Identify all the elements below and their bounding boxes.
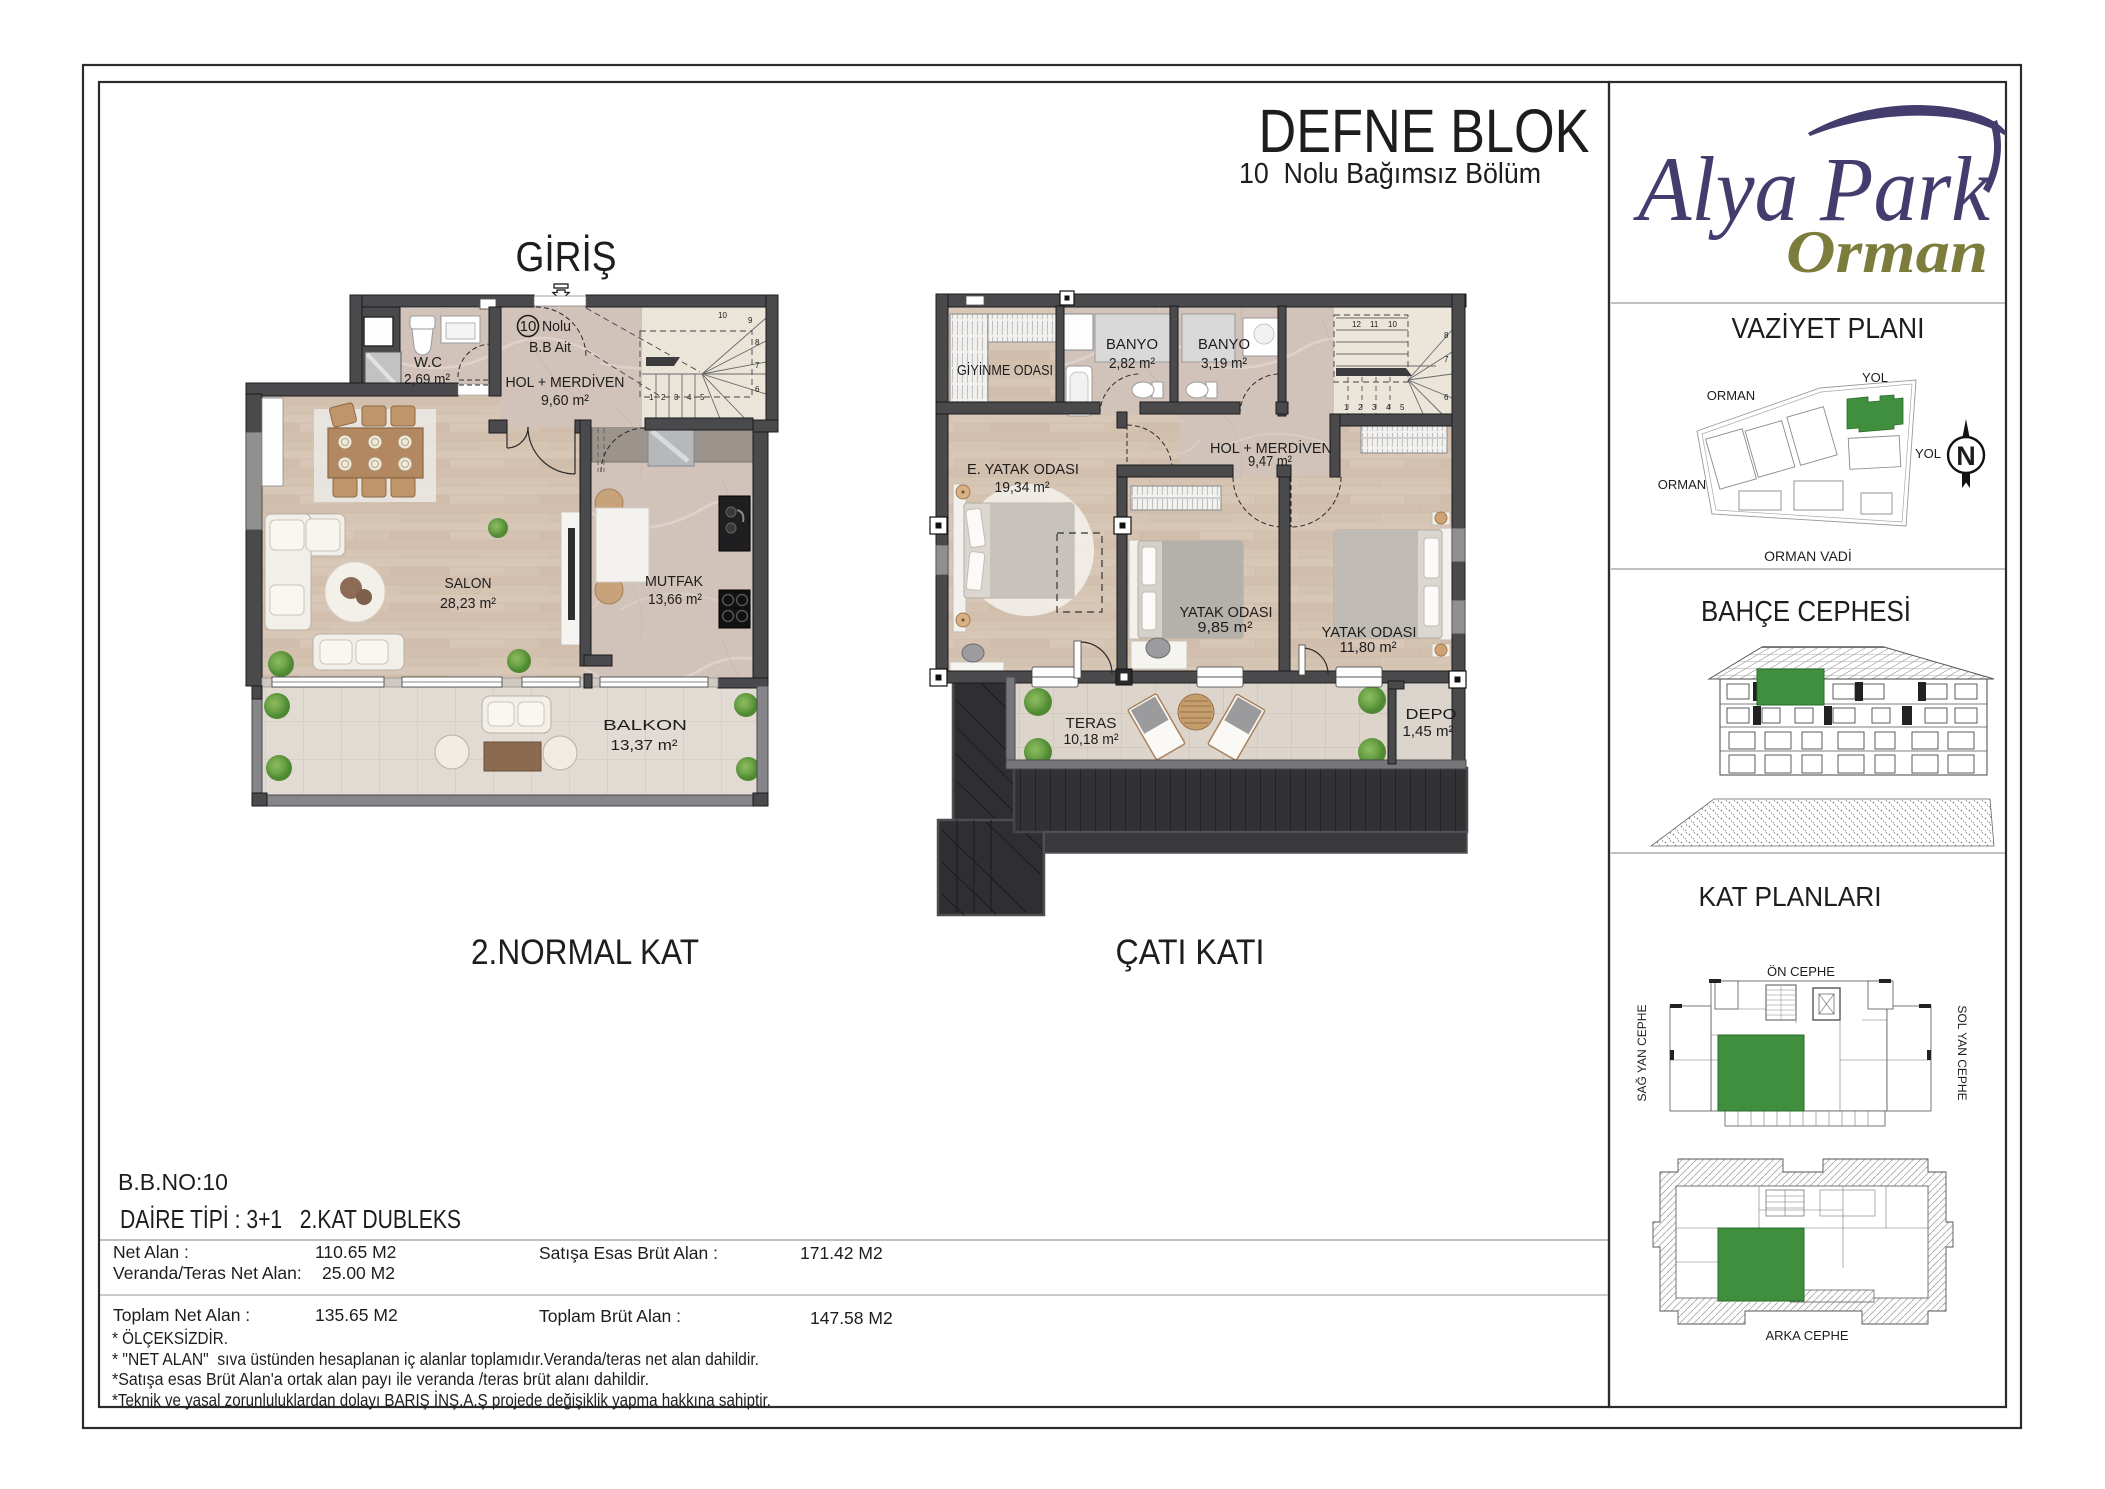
svg-text:11: 11 [1370, 320, 1379, 329]
svg-text:ORMAN: ORMAN [1707, 388, 1755, 403]
svg-text:E. YATAK ODASI: E. YATAK ODASI [967, 461, 1079, 478]
svg-text:2,82 m²: 2,82 m² [1109, 355, 1155, 372]
svg-text:*Satışa esas Brüt Alan'a ortak: *Satışa esas Brüt Alan'a ortak alan payı… [112, 1369, 649, 1389]
svg-text:9,47 m²: 9,47 m² [1248, 453, 1292, 470]
svg-text:Toplam Net Alan :: Toplam Net Alan : [113, 1305, 250, 1325]
svg-text:8: 8 [755, 338, 760, 347]
svg-text:GİYİNME ODASI: GİYİNME ODASI [957, 361, 1053, 379]
svg-text:Veranda/Teras Net Alan:: Veranda/Teras Net Alan: [113, 1263, 302, 1283]
svg-text:W.C: W.C [414, 354, 442, 371]
svg-text:4: 4 [1386, 403, 1391, 412]
svg-text:KAT PLANLARI: KAT PLANLARI [1699, 881, 1882, 912]
svg-text:10,18 m²: 10,18 m² [1064, 731, 1119, 748]
svg-text:TERAS: TERAS [1066, 715, 1117, 732]
svg-text:7: 7 [755, 361, 760, 370]
svg-text:ÇATI KATI: ÇATI KATI [1116, 933, 1265, 972]
svg-text:3: 3 [1372, 403, 1377, 412]
svg-text:10 Nolu Bağımsız Bölüm: 10 Nolu Bağımsız Bölüm [1239, 158, 1541, 190]
svg-text:DEFNE BLOK: DEFNE BLOK [1259, 97, 1590, 165]
svg-text:MUTFAK: MUTFAK [645, 573, 703, 590]
svg-text:Net Alan :: Net Alan : [113, 1242, 189, 1262]
svg-text:ARKA CEPHE: ARKA CEPHE [1765, 1328, 1848, 1343]
svg-text:5: 5 [700, 393, 705, 402]
svg-text:13,37 m²: 13,37 m² [611, 737, 678, 754]
svg-text:12: 12 [1352, 320, 1361, 329]
svg-text:1: 1 [1344, 403, 1349, 412]
svg-text:2.NORMAL KAT: 2.NORMAL KAT [471, 933, 699, 972]
svg-text:1: 1 [649, 393, 654, 402]
svg-text:2,69 m²: 2,69 m² [404, 371, 450, 388]
svg-text:Nolu: Nolu [542, 318, 571, 335]
svg-text:N: N [1956, 441, 1976, 471]
svg-text:Satışa Esas Brüt Alan :: Satışa Esas Brüt Alan : [539, 1243, 718, 1263]
svg-text:B.B Ait: B.B Ait [529, 339, 572, 356]
svg-text:6: 6 [755, 385, 760, 394]
svg-text:4: 4 [687, 393, 692, 402]
svg-text:147.58 M2: 147.58 M2 [810, 1308, 893, 1328]
svg-text:BANYO: BANYO [1106, 336, 1158, 353]
svg-text:* "NET ALAN" sıva üstünden he: * "NET ALAN" sıva üstünden hesaplanan iç… [112, 1349, 759, 1369]
svg-text:135.65 M2: 135.65 M2 [315, 1305, 398, 1325]
svg-text:SOL YAN CEPHE: SOL YAN CEPHE [1955, 1005, 1969, 1100]
svg-text:13,66 m²: 13,66 m² [648, 591, 702, 608]
svg-text:1,45 m²: 1,45 m² [1403, 723, 1454, 740]
svg-text:7: 7 [1444, 355, 1449, 364]
svg-text:GİRİŞ: GİRİŞ [516, 233, 617, 280]
svg-text:B.B.NO:10: B.B.NO:10 [118, 1169, 228, 1195]
svg-text:3,19 m²: 3,19 m² [1201, 355, 1247, 372]
svg-text:2: 2 [1358, 403, 1363, 412]
svg-text:YOL: YOL [1862, 370, 1888, 385]
svg-text:19,34 m²: 19,34 m² [995, 479, 1050, 496]
svg-text:ORMAN: ORMAN [1658, 477, 1706, 492]
svg-text:110.65 M2: 110.65 M2 [315, 1242, 396, 1262]
svg-text:10: 10 [1388, 320, 1397, 329]
svg-text:11,80 m²: 11,80 m² [1340, 639, 1397, 656]
svg-text:SALON: SALON [445, 575, 492, 592]
svg-text:ORMAN VADİ: ORMAN VADİ [1764, 547, 1852, 564]
svg-text:25.00 M2: 25.00 M2 [322, 1263, 395, 1283]
svg-text:10: 10 [520, 318, 537, 335]
svg-text:BALKON: BALKON [603, 717, 687, 734]
svg-text:* ÖLÇEKSİZDİR.: * ÖLÇEKSİZDİR. [112, 1328, 228, 1348]
svg-text:6: 6 [1444, 393, 1449, 402]
svg-text:10: 10 [718, 311, 727, 320]
svg-text:2: 2 [661, 393, 666, 402]
svg-text:DEPO: DEPO [1406, 706, 1457, 723]
svg-text:*Teknik ve yasal zorunluluklar: *Teknik ve yasal zorunluluklardan dolayı… [112, 1390, 771, 1410]
svg-text:9,85 m²: 9,85 m² [1198, 619, 1253, 636]
svg-text:5: 5 [1400, 403, 1405, 412]
svg-text:171.42 M2: 171.42 M2 [800, 1243, 883, 1263]
svg-text:YOL: YOL [1915, 446, 1941, 461]
svg-text:HOL + MERDİVEN: HOL + MERDİVEN [506, 373, 625, 391]
svg-text:3: 3 [674, 393, 679, 402]
svg-text:DAİRE TİPİ : 3+1 2.KAT DUBLE: DAİRE TİPİ : 3+1 2.KAT DUBLEKS [120, 1204, 461, 1234]
svg-text:Orman: Orman [1786, 219, 1988, 285]
svg-text:VAZİYET PLANI: VAZİYET PLANI [1732, 312, 1925, 345]
svg-text:9,60 m²: 9,60 m² [541, 392, 589, 409]
svg-text:Toplam Brüt Alan :: Toplam Brüt Alan : [539, 1306, 681, 1326]
svg-text:28,23 m²: 28,23 m² [440, 595, 496, 612]
svg-text:8: 8 [1444, 331, 1449, 340]
svg-text:BAHÇE CEPHESİ: BAHÇE CEPHESİ [1701, 595, 1911, 628]
svg-text:ÖN CEPHE: ÖN CEPHE [1767, 964, 1835, 979]
svg-text:BANYO: BANYO [1198, 336, 1250, 353]
svg-text:SAĞ YAN CEPHE: SAĞ YAN CEPHE [1634, 1005, 1649, 1102]
svg-text:9: 9 [748, 316, 753, 325]
